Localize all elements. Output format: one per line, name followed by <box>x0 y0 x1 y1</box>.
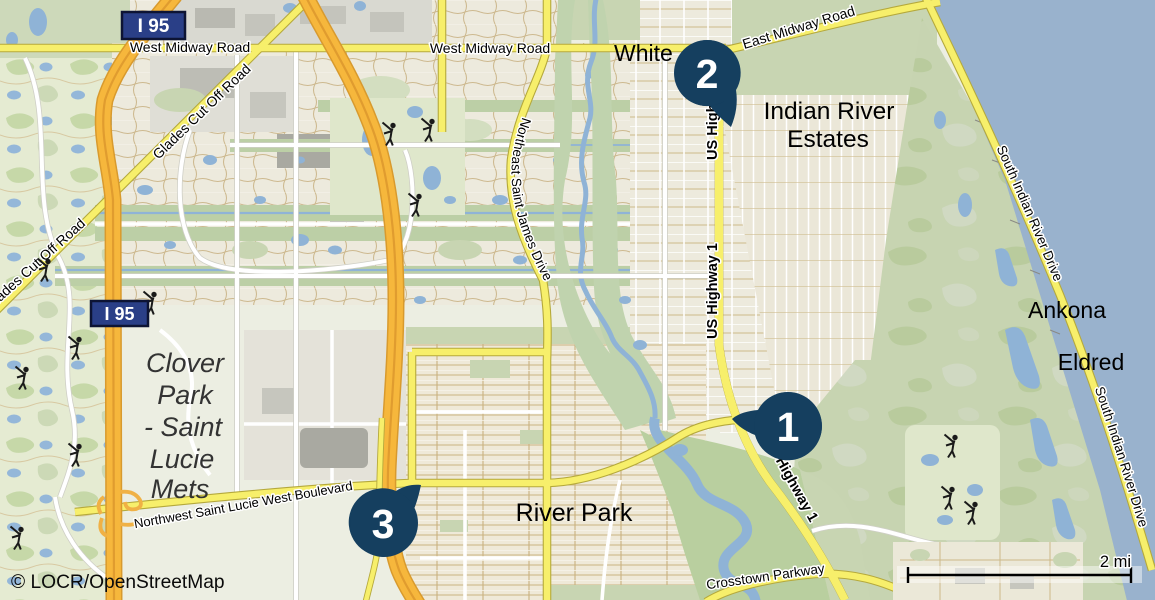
svg-text:River Park: River Park <box>516 499 633 527</box>
svg-text:2 mi: 2 mi <box>1100 553 1131 571</box>
svg-text:I 95: I 95 <box>104 304 134 324</box>
svg-text:© LOCR/OpenStreetMap: © LOCR/OpenStreetMap <box>11 572 225 593</box>
svg-text:Lucie: Lucie <box>150 444 215 474</box>
svg-text:Mets: Mets <box>151 474 210 504</box>
svg-text:2: 2 <box>696 51 719 97</box>
svg-text:1: 1 <box>777 404 800 450</box>
svg-text:White: White <box>614 40 673 66</box>
svg-text:I 95: I 95 <box>138 16 170 37</box>
svg-text:Park: Park <box>157 380 214 410</box>
svg-text:- Saint: - Saint <box>144 412 224 442</box>
svg-text:Eldred: Eldred <box>1058 349 1124 375</box>
svg-text:West Midway Road: West Midway Road <box>430 40 550 56</box>
svg-text:US Highway 1: US Highway 1 <box>705 243 721 339</box>
svg-text:West Midway Road: West Midway Road <box>130 39 250 55</box>
svg-text:Indian River: Indian River <box>764 98 895 125</box>
svg-text:3: 3 <box>372 501 395 547</box>
svg-text:Clover: Clover <box>146 348 225 378</box>
svg-text:Ankona: Ankona <box>1028 297 1106 323</box>
svg-text:Estates: Estates <box>787 126 869 153</box>
